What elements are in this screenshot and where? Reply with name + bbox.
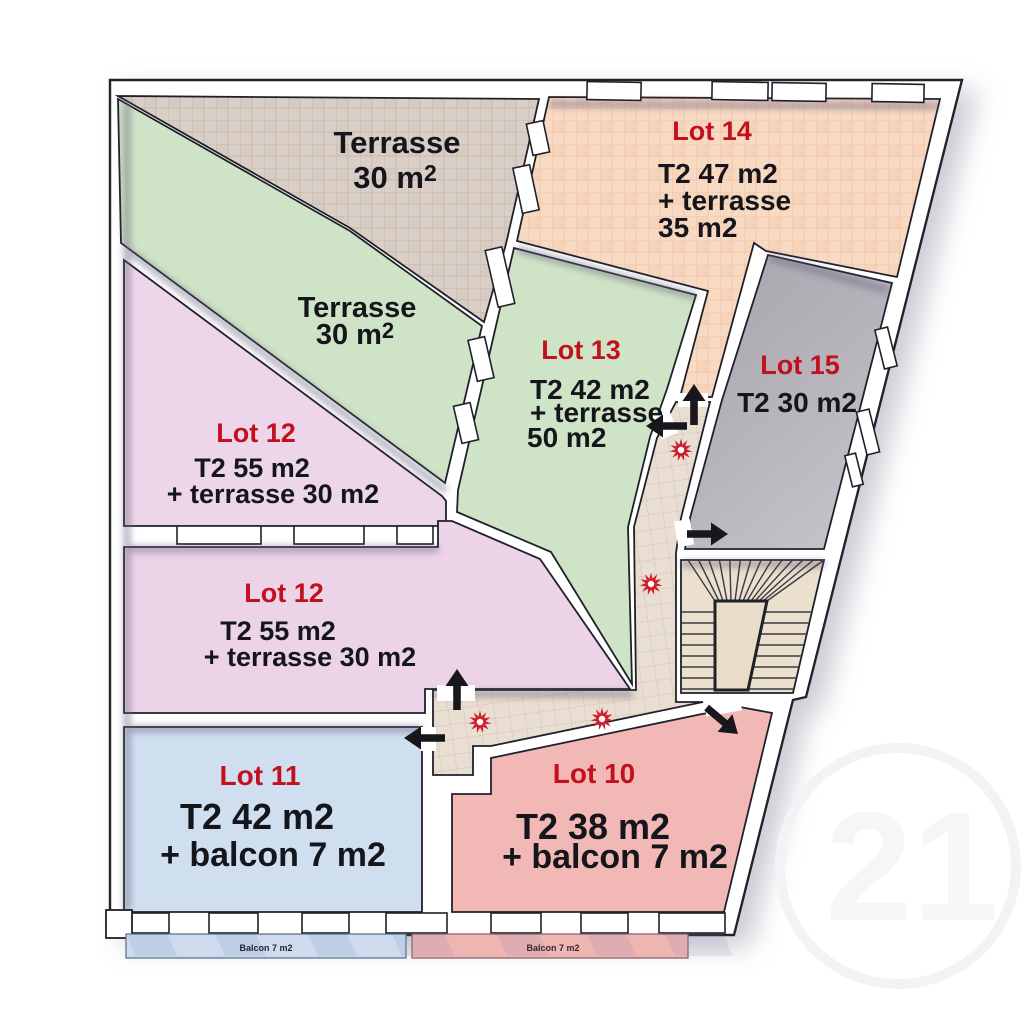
svg-text:21: 21 (826, 780, 998, 953)
svg-text:Lot 11: Lot 11 (220, 760, 301, 791)
svg-text:Lot 14: Lot 14 (672, 116, 752, 146)
svg-text:Balcon 7 m2: Balcon 7 m2 (526, 943, 579, 953)
svg-text:Lot 10: Lot 10 (553, 758, 635, 789)
svg-text:Lot 12: Lot 12 (244, 578, 324, 608)
svg-text:Lot 15: Lot 15 (760, 350, 840, 380)
svg-text:T2 42 m2: T2 42 m2 (180, 796, 334, 837)
svg-text:Lot 13: Lot 13 (541, 335, 621, 365)
svg-text:Lot 12: Lot 12 (216, 418, 296, 448)
svg-text:+ terrasse 30 m2: + terrasse 30 m2 (204, 642, 416, 672)
svg-text:Terrasse: Terrasse (334, 125, 461, 160)
svg-text:Balcon 7 m2: Balcon 7 m2 (239, 943, 292, 953)
svg-text:+ terrasse 30 m2: + terrasse 30 m2 (167, 479, 379, 509)
svg-text:35 m2: 35 m2 (658, 212, 737, 243)
svg-text:T2 30 m2: T2 30 m2 (737, 387, 857, 418)
svg-text:+ balcon 7 m2: + balcon 7 m2 (502, 838, 728, 876)
svg-text:+ balcon 7 m2: + balcon 7 m2 (160, 836, 386, 874)
svg-text:50 m2: 50 m2 (527, 422, 606, 453)
